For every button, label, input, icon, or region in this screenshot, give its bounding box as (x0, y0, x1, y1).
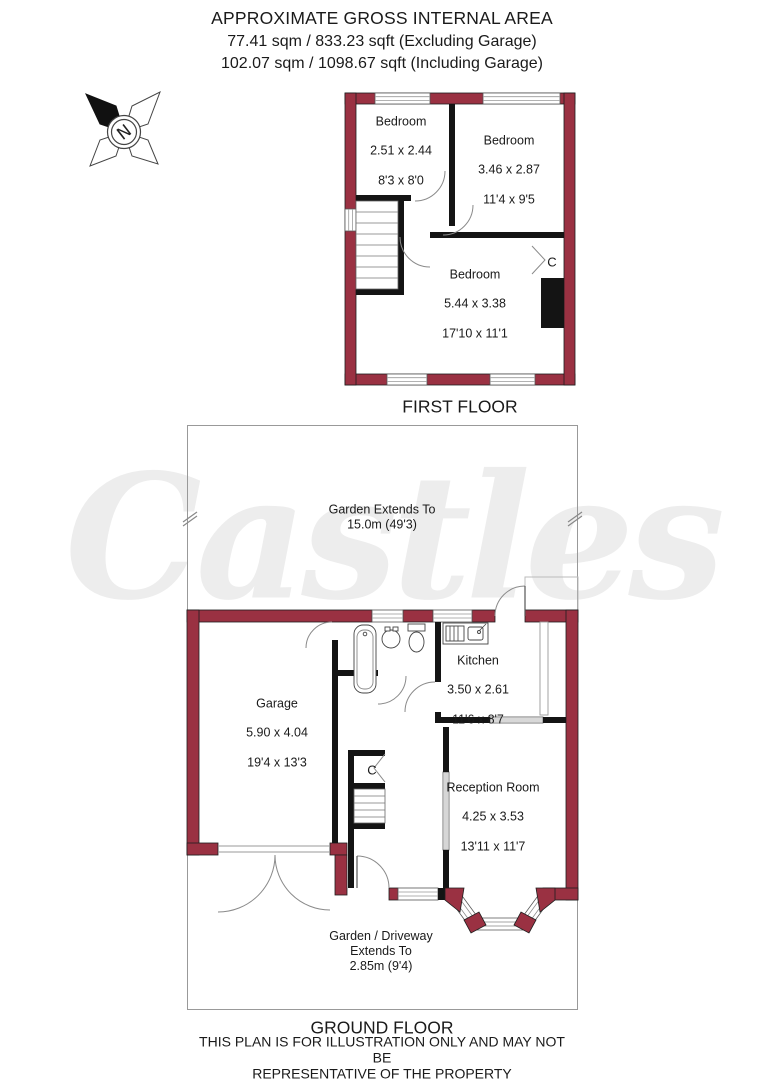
room-dim-metric: 2.51 x 2.44 (370, 144, 432, 159)
page-title: APPROXIMATE GROSS INTERNAL AREA (0, 8, 764, 29)
bathroom-door-arc (378, 676, 406, 704)
room-dim-imperial: 11'4 x 9'5 (478, 192, 540, 207)
room-dim-metric: 3.46 x 2.87 (478, 163, 540, 178)
gf-garage-label: Garage 5.90 x 4.04 19'4 x 13'3 (246, 681, 308, 784)
room-dim-imperial: 13'11 x 11'7 (446, 839, 539, 854)
garage-internal-door-arc (306, 622, 332, 648)
garage-door-right-arc (275, 855, 330, 910)
gf-reception-label: Reception Room 4.25 x 3.53 13'11 x 11'7 (446, 765, 539, 868)
bathroom-fixtures (354, 624, 425, 693)
gf-kitchen-label: Kitchen 3.50 x 2.61 11'6 x 8'7 (447, 638, 509, 741)
toilet-cistern (408, 624, 425, 631)
disclaimer: THIS PLAN IS FOR ILLUSTRATION ONLY AND M… (191, 1034, 573, 1080)
ff-bedroom1-label: Bedroom 2.51 x 2.44 8'3 x 8'0 (370, 99, 432, 202)
sink (382, 630, 400, 648)
room-dim-imperial: 19'4 x 13'3 (246, 755, 308, 770)
room-dim-metric: 4.25 x 3.53 (446, 810, 539, 825)
room-name: Bedroom (370, 114, 432, 129)
area-including-garage: 102.07 sqm / 1098.67 sqft (Including Gar… (0, 55, 764, 73)
kitchen-cupboard (540, 622, 548, 715)
ff-closet-bifold-door (532, 246, 545, 274)
header: APPROXIMATE GROSS INTERNAL AREA 77.41 sq… (0, 8, 764, 73)
gf-closet-label: C (367, 762, 376, 777)
room-name: Reception Room (446, 780, 539, 795)
garden-door-arc (495, 586, 525, 616)
first-floor-caption: FIRST FLOOR (402, 397, 517, 418)
room-name: Bedroom (478, 133, 540, 148)
ff-closet-label: C (547, 254, 556, 269)
room-name: Bedroom (442, 267, 508, 282)
bay-window (445, 888, 555, 933)
hall-door-arc (405, 682, 435, 712)
room-name: Garage (246, 696, 308, 711)
garage-door-left-arc (218, 855, 275, 912)
room-dim-metric: 3.50 x 2.61 (447, 683, 509, 698)
room-dim-imperial: 11'6 x 8'7 (447, 712, 509, 727)
room-dim-imperial: 8'3 x 8'0 (370, 173, 432, 188)
room-dim-metric: 5.90 x 4.04 (246, 726, 308, 741)
ff-stairs (356, 201, 398, 289)
gf-stairs (354, 789, 385, 823)
driveway-note: Garden / Driveway Extends To 2.85m (9'4) (329, 929, 433, 973)
compass-icon: N (80, 86, 164, 170)
garage-door (218, 846, 330, 852)
ff-bedroom2-label: Bedroom 3.46 x 2.87 11'4 x 9'5 (478, 118, 540, 221)
side-porch-outline (525, 577, 578, 610)
room-dim-imperial: 17'10 x 11'1 (442, 326, 508, 341)
garden-note: Garden Extends To 15.0m (49'3) (329, 502, 436, 532)
toilet (409, 632, 424, 652)
room-dim-metric: 5.44 x 3.38 (442, 297, 508, 312)
ff-bedroom3-label: Bedroom 5.44 x 3.38 17'10 x 11'1 (442, 252, 508, 355)
floorplan-page: APPROXIMATE GROSS INTERNAL AREA 77.41 sq… (0, 0, 764, 1080)
front-door-arc (357, 856, 389, 888)
area-excluding-garage: 77.41 sqm / 833.23 sqft (Excluding Garag… (0, 33, 764, 51)
room-name: Kitchen (447, 653, 509, 668)
